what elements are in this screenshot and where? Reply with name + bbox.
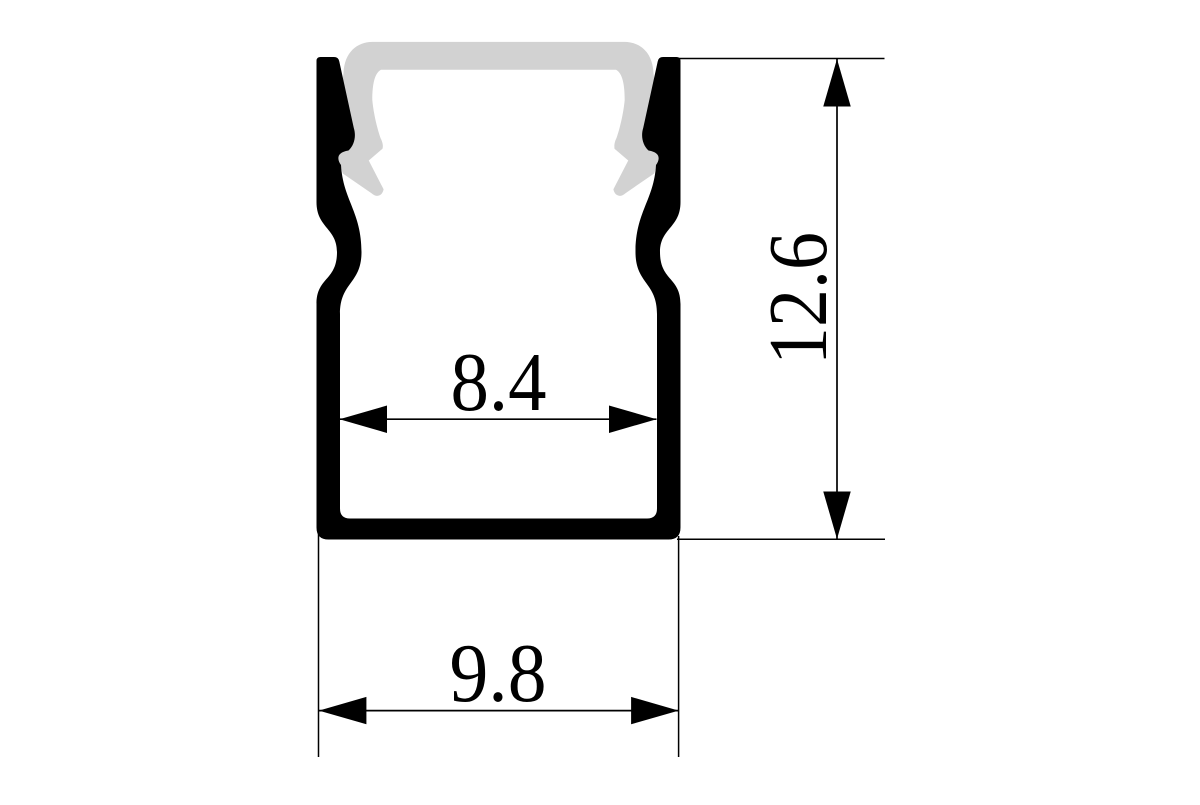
svg-text:8.4: 8.4 (451, 336, 547, 429)
svg-text:12.6: 12.6 (752, 232, 845, 365)
svg-text:9.8: 9.8 (450, 627, 547, 720)
